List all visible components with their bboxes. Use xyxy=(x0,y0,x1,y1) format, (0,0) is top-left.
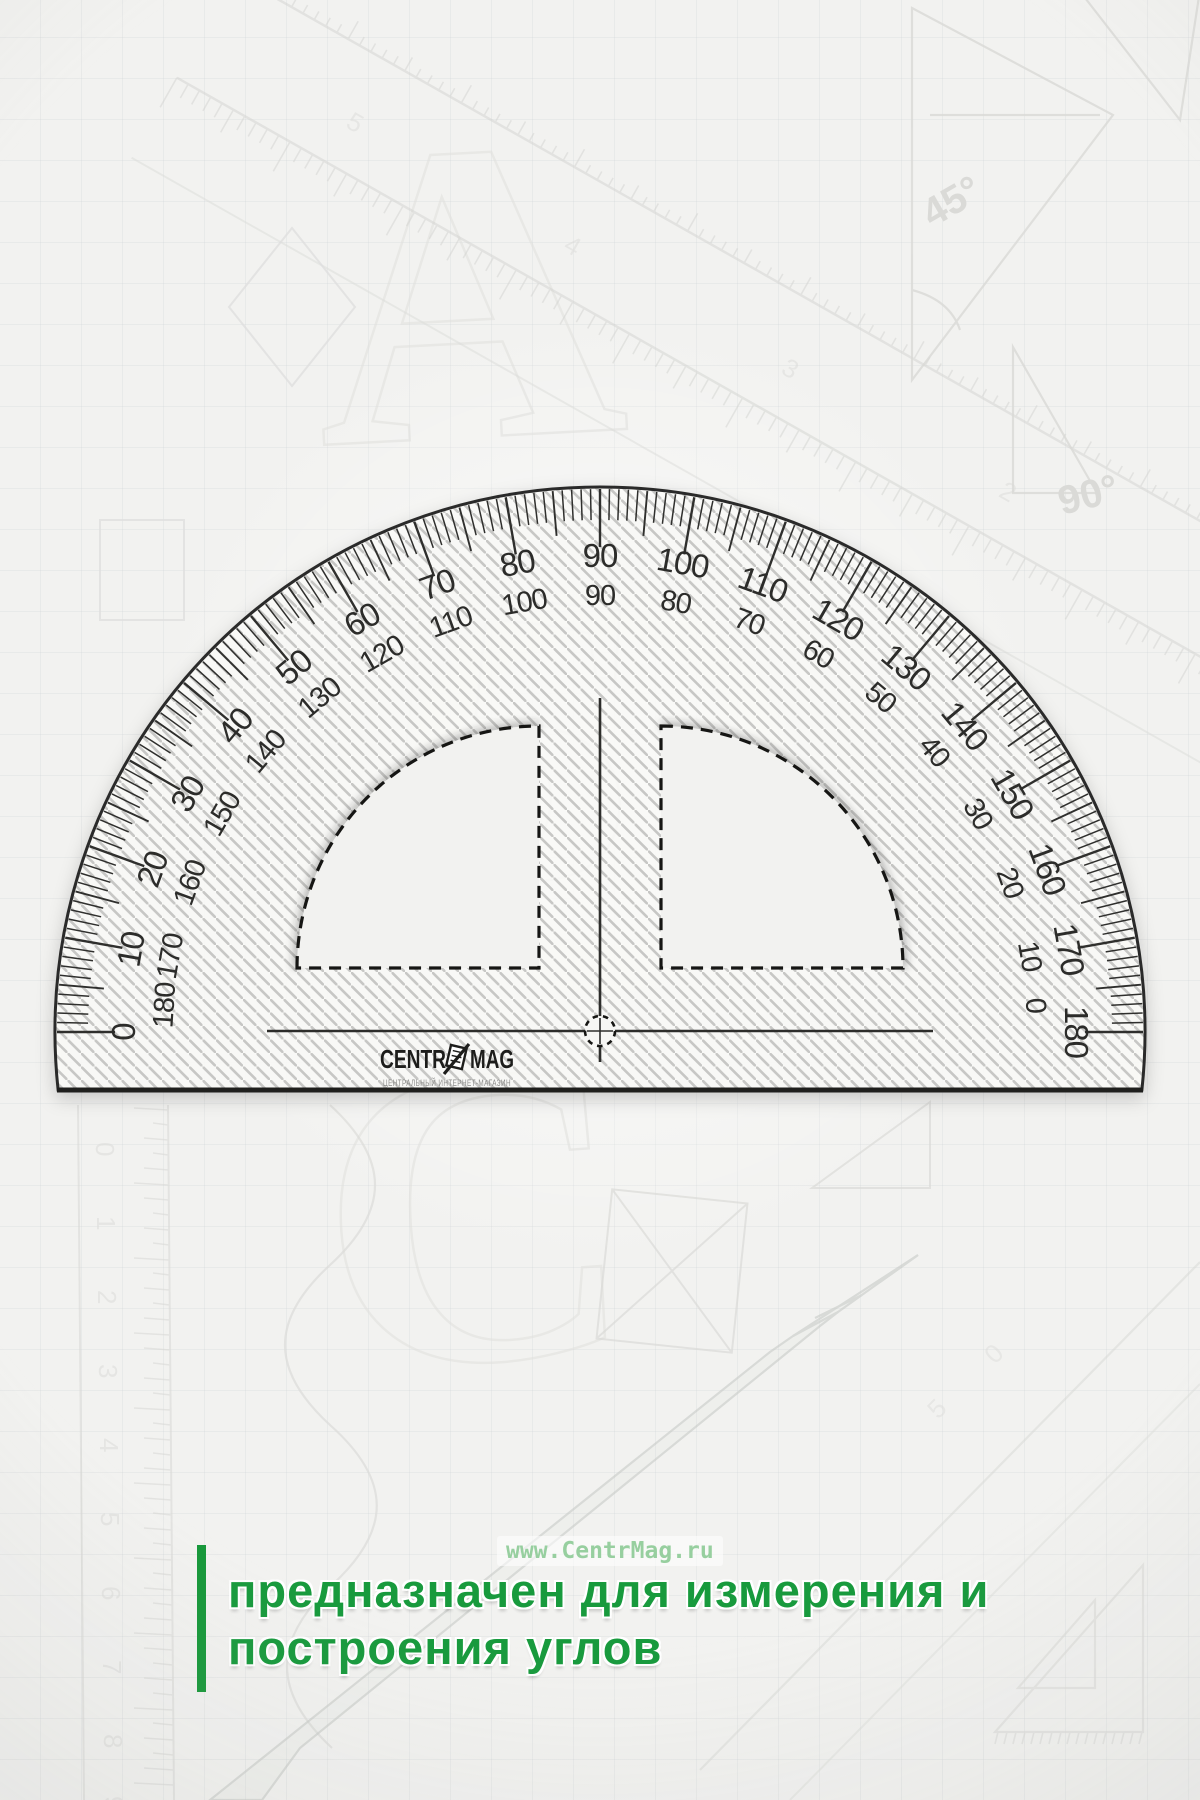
degree-label-inner: 80 xyxy=(658,584,693,621)
brand-name-left: CENTR xyxy=(380,1044,446,1074)
website-watermark: www.CentrMag.ru xyxy=(497,1536,723,1566)
caption-line-1: предназначен для измерения и xyxy=(228,1563,989,1618)
degree-label-outer: 180 xyxy=(1058,1006,1095,1059)
caption-line-2: построения углов xyxy=(228,1620,662,1675)
degree-label-inner: 90 xyxy=(585,580,615,612)
degree-label-outer: 0 xyxy=(105,1023,142,1041)
degree-label-inner: 10 xyxy=(1011,939,1048,974)
degree-label-inner: 180 xyxy=(147,982,182,1029)
degree-label-outer: 80 xyxy=(497,541,538,584)
caption-accent-bar xyxy=(197,1545,206,1692)
degree-label-outer: 10 xyxy=(110,928,153,969)
origin-hole xyxy=(585,1016,615,1046)
degree-label-outer: 90 xyxy=(583,537,618,574)
brand-subtitle: ЦЕНТРАЛЬНЫЙ ИНТЕРНЕТ-МАГАЗИН xyxy=(383,1077,511,1088)
protractor: 0102030405060708090100110120130140150160… xyxy=(0,0,1200,1800)
product-image-page: А Б С 5 4 3 2 1 90° 45° xyxy=(0,0,1200,1800)
brand-name-right: MAG xyxy=(470,1044,514,1074)
degree-label-inner: 0 xyxy=(1019,997,1052,1014)
